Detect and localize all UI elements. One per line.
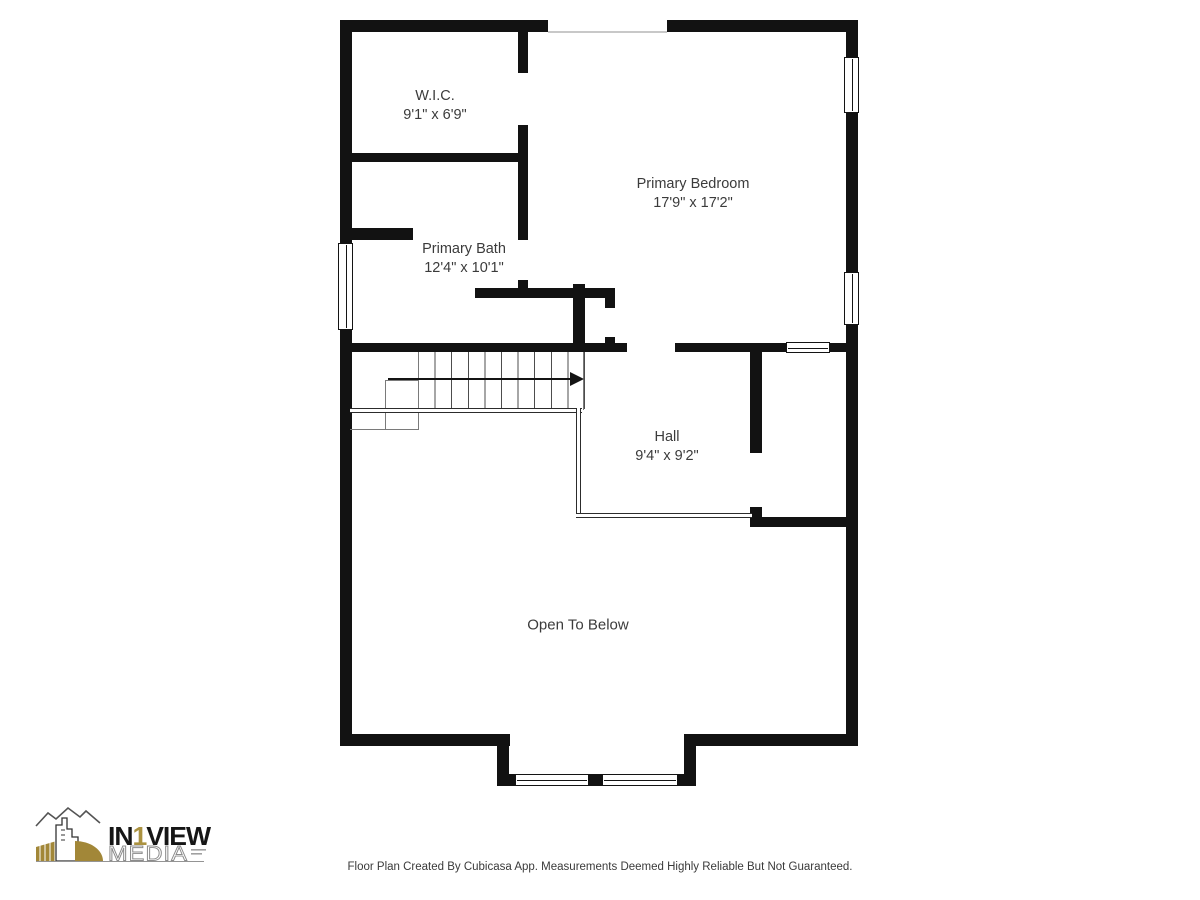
window bbox=[338, 243, 353, 330]
wall bbox=[475, 288, 615, 298]
wall bbox=[497, 734, 509, 786]
wall bbox=[340, 153, 528, 162]
room-name: Primary Bedroom bbox=[637, 175, 750, 194]
wall bbox=[518, 280, 528, 288]
building-icon bbox=[56, 818, 78, 861]
wall bbox=[340, 330, 352, 746]
open-below-edge bbox=[576, 408, 581, 518]
wall bbox=[684, 734, 858, 746]
logo-tagline-line bbox=[191, 853, 202, 855]
room-dims: 9'1" x 6'9" bbox=[403, 106, 466, 125]
disclaimer-text: Floor Plan Created By Cubicasa App. Meas… bbox=[0, 861, 1200, 873]
open-below-edge bbox=[576, 513, 752, 518]
wall bbox=[518, 20, 528, 73]
stair-landing-line bbox=[385, 380, 418, 381]
window bbox=[786, 342, 830, 353]
wall-opening-line bbox=[548, 31, 667, 33]
room-label-hall: Hall 9'4" x 9'2" bbox=[635, 428, 698, 466]
window bbox=[844, 57, 859, 113]
wall bbox=[518, 125, 528, 240]
wall bbox=[605, 298, 615, 308]
stair-treads bbox=[418, 352, 585, 409]
wall bbox=[677, 774, 684, 786]
room-dims: 9'4" x 9'2" bbox=[635, 447, 698, 466]
room-label-wic: W.I.C. 9'1" x 6'9" bbox=[403, 87, 466, 125]
wall bbox=[340, 734, 510, 746]
logo-graphic: IN1VIEW MEDIA bbox=[34, 802, 216, 868]
logo-disc-shape bbox=[75, 841, 103, 861]
window bbox=[602, 774, 678, 786]
window bbox=[515, 774, 589, 786]
mountain-icon bbox=[36, 808, 100, 826]
room-dims: 12'4" x 10'1" bbox=[422, 259, 506, 278]
wall bbox=[340, 228, 413, 240]
stairs-arrow-head-icon bbox=[570, 372, 584, 386]
stair-landing-line bbox=[418, 352, 419, 430]
floor-plan: W.I.C. 9'1" x 6'9" Primary Bedroom 17'9"… bbox=[0, 0, 1200, 900]
wall bbox=[846, 325, 858, 746]
wall bbox=[750, 517, 858, 527]
wall bbox=[340, 343, 627, 352]
stair-landing-line bbox=[350, 429, 419, 430]
open-below-edge bbox=[350, 408, 582, 413]
logo-tagline-line bbox=[191, 849, 206, 851]
wall bbox=[750, 348, 762, 453]
room-name: W.I.C. bbox=[403, 87, 466, 106]
room-name: Open To Below bbox=[527, 616, 628, 635]
wall bbox=[588, 774, 602, 786]
room-label-open-to-below: Open To Below bbox=[527, 616, 628, 635]
room-name: Hall bbox=[635, 428, 698, 447]
room-name: Primary Bath bbox=[422, 240, 506, 259]
room-label-primary-bedroom: Primary Bedroom 17'9" x 17'2" bbox=[637, 175, 750, 213]
wall bbox=[830, 343, 846, 352]
room-label-primary-bath: Primary Bath 12'4" x 10'1" bbox=[422, 240, 506, 278]
wall bbox=[340, 20, 352, 243]
stairs-direction-arrow bbox=[388, 378, 572, 380]
wall bbox=[675, 343, 786, 352]
wall bbox=[846, 20, 858, 57]
window bbox=[844, 272, 859, 325]
wall bbox=[667, 20, 858, 32]
stair-landing-line bbox=[385, 380, 386, 430]
wall bbox=[573, 284, 585, 352]
wall bbox=[846, 113, 858, 272]
wall bbox=[340, 20, 548, 32]
room-dims: 17'9" x 17'2" bbox=[637, 194, 750, 213]
